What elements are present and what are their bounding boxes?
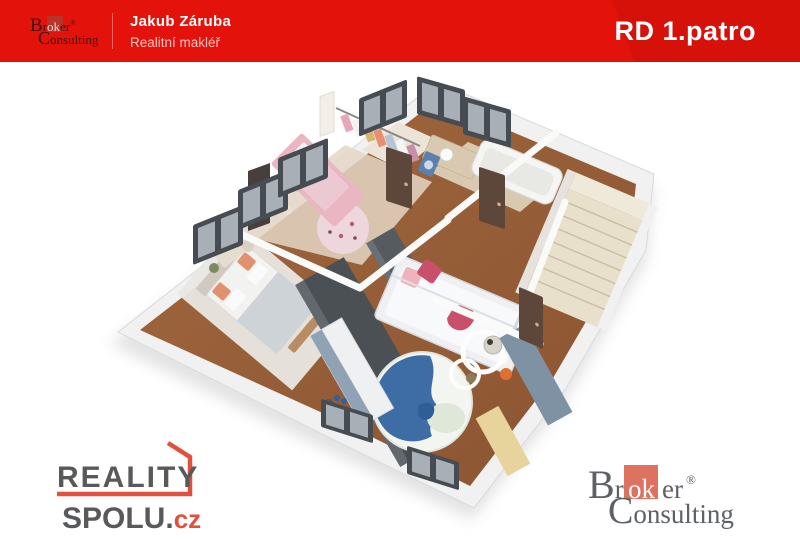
chair-cushion (466, 373, 476, 383)
ball (487, 339, 493, 345)
door-kids-room (519, 287, 543, 349)
door-bathroom (479, 167, 505, 229)
plant (209, 263, 219, 273)
basketball (500, 368, 512, 380)
closet-shelf (320, 91, 334, 136)
ball-bin (484, 336, 502, 354)
spolu-text: SPOLU.cz (62, 502, 201, 535)
real-estate-flyer: Broker® Consulting Jakub Záruba Realitní… (0, 0, 800, 539)
door-closet (386, 147, 412, 209)
reality-text: REALITY (57, 461, 199, 494)
broker-consulting-logo: Broker® Consulting (578, 452, 778, 532)
reality-spolu-logo: REALITY SPOLU.cz (50, 440, 220, 536)
